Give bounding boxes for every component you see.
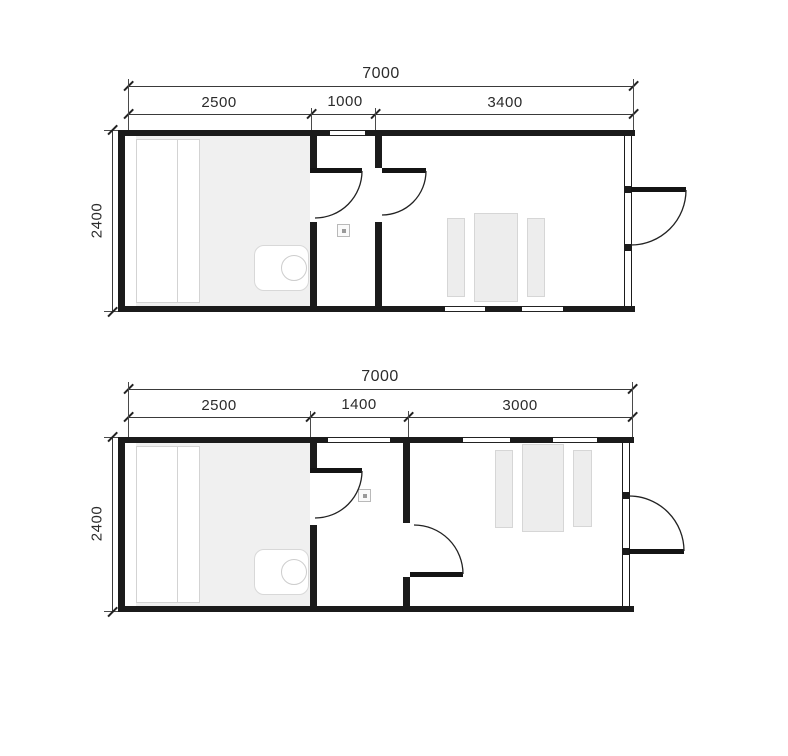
window-corridor-top — [328, 437, 390, 443]
switch-icon — [358, 489, 371, 502]
living-room-door-arc — [414, 525, 463, 574]
window-corridor-top — [330, 130, 365, 136]
living-room-door-leaf — [382, 168, 426, 173]
bathroom-door-arc — [315, 471, 362, 518]
wall-corridor-living-lower-seg — [375, 222, 382, 306]
extension-line — [311, 108, 312, 130]
lower-total-width-label: 7000 — [340, 368, 420, 386]
upper-height-dimension-line — [112, 130, 113, 312]
bench-divider-line — [177, 140, 178, 302]
lower-dimension-line-segments — [128, 417, 632, 418]
wall-bathroom-corridor-upper-seg — [310, 136, 317, 168]
extension-line — [128, 382, 129, 437]
switch-dot — [342, 229, 346, 233]
upper-segment-label-3: 3400 — [470, 94, 540, 111]
living-room-door-leaf — [410, 572, 463, 577]
window-living-bottom-2 — [522, 306, 563, 312]
wall-right — [624, 136, 632, 306]
bench-left — [495, 450, 513, 528]
upper-segment-label-2: 1000 — [310, 93, 380, 110]
lower-height-dimension-line — [112, 437, 113, 612]
toilet-bowl — [281, 255, 307, 281]
window-living-top-2 — [553, 437, 597, 443]
wall-corridor-living-lower-seg — [403, 577, 410, 606]
table — [522, 444, 564, 532]
table — [474, 213, 518, 302]
living-room-door-arc — [382, 171, 426, 215]
bench-right — [573, 450, 592, 527]
entry-door-leaf — [631, 187, 686, 192]
extension-line — [375, 108, 376, 130]
lower-height-label: 2400 — [89, 494, 106, 554]
window-living-top-1 — [463, 437, 510, 443]
lower-segment-label-2: 1400 — [324, 396, 394, 413]
floor-plan-canvas: 7000 2500 1000 3400 2400 — [0, 0, 788, 756]
switch-dot — [363, 494, 367, 498]
upper-dimension-line-segments — [128, 114, 633, 115]
extension-line — [310, 411, 311, 437]
bathroom-door-arc — [315, 171, 362, 218]
extension-line — [128, 79, 129, 130]
lower-segment-label-3: 3000 — [485, 397, 555, 414]
wall-bathroom-corridor-lower-seg — [310, 525, 317, 606]
entry-door-arc — [629, 496, 684, 551]
wall-left — [118, 130, 125, 312]
wall-left — [118, 437, 125, 612]
upper-dimension-line-total — [128, 86, 633, 87]
entry-door-leaf — [629, 549, 684, 554]
wall-right — [622, 443, 630, 606]
bench-unit — [136, 446, 200, 603]
extension-line — [632, 382, 633, 437]
extension-line — [408, 411, 409, 437]
upper-total-width-label: 7000 — [341, 65, 421, 83]
entry-door-jamb — [622, 492, 630, 499]
switch-icon — [337, 224, 350, 237]
entry-door-jamb — [624, 244, 632, 251]
bench-left — [447, 218, 465, 297]
wall-corridor-living-upper-seg — [375, 136, 382, 168]
bathroom-door-leaf — [310, 168, 362, 173]
extension-line — [633, 79, 634, 130]
entry-door-arc — [631, 190, 686, 245]
toilet-bowl — [281, 559, 307, 585]
wall-bottom — [118, 606, 634, 612]
wall-bathroom-corridor-upper-seg — [310, 443, 317, 468]
bench-unit — [136, 139, 200, 303]
bench-right — [527, 218, 545, 297]
window-living-bottom-1 — [445, 306, 485, 312]
lower-segment-label-1: 2500 — [184, 397, 254, 414]
wall-corridor-living-upper-seg — [403, 443, 410, 523]
bathroom-door-leaf — [310, 468, 362, 473]
wall-bathroom-corridor-lower-seg — [310, 222, 317, 306]
bench-divider-line — [177, 447, 178, 602]
lower-dimension-line-total — [128, 389, 632, 390]
upper-height-label: 2400 — [89, 191, 106, 251]
upper-segment-label-1: 2500 — [184, 94, 254, 111]
